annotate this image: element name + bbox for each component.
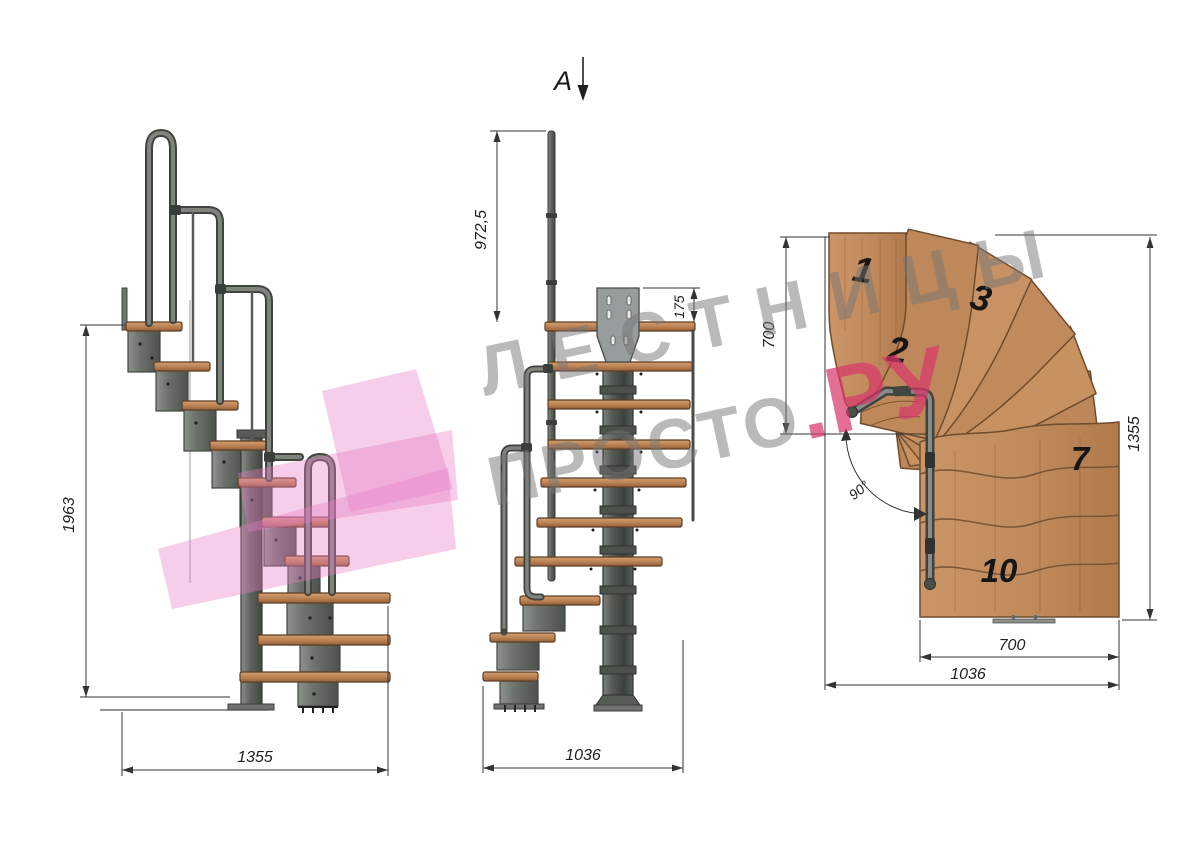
plan-bracket-stub	[1012, 615, 1015, 620]
plan-view: 700 1355 700 1036 90° 1 2 3 7 10	[761, 227, 1157, 690]
plan-angle-dimension: 90°	[846, 477, 873, 503]
front-treads	[483, 322, 695, 681]
side-width-dimension: 1355	[237, 749, 273, 766]
section-label: A	[552, 66, 572, 96]
front-column-flare	[596, 695, 640, 705]
drawing-stage: 1963 1355 A	[0, 0, 1200, 849]
front-mounting-plate	[597, 288, 639, 362]
front-central-column	[603, 362, 633, 706]
side-pole-base-plate	[228, 704, 274, 710]
plan-inner-width-dimension: 700	[999, 637, 1026, 654]
side-foot-bolts	[298, 706, 338, 713]
plan-bracket-stub	[1034, 615, 1037, 620]
front-elevation-view: A	[473, 57, 700, 773]
plan-tread-number-10: 10	[981, 552, 1018, 589]
plan-left-dimension: 700	[761, 322, 778, 349]
section-arrow-head	[578, 85, 589, 101]
front-newel-post	[548, 131, 555, 581]
plan-tread-number-7: 7	[1071, 440, 1091, 477]
front-post-dimension: 972,5	[473, 210, 490, 250]
plan-floor-bracket	[993, 619, 1055, 623]
front-module-base	[494, 704, 544, 709]
front-width-dimension: 1036	[565, 747, 601, 764]
plan-right-dimension: 1355	[1126, 416, 1143, 452]
staircase-technical-drawing: 1963 1355 A	[0, 0, 1200, 849]
front-plate-dimension: 175	[671, 295, 687, 319]
front-column-base	[594, 705, 642, 711]
side-height-dimension: 1963	[61, 497, 78, 533]
plan-outer-width-dimension: 1036	[950, 666, 986, 683]
